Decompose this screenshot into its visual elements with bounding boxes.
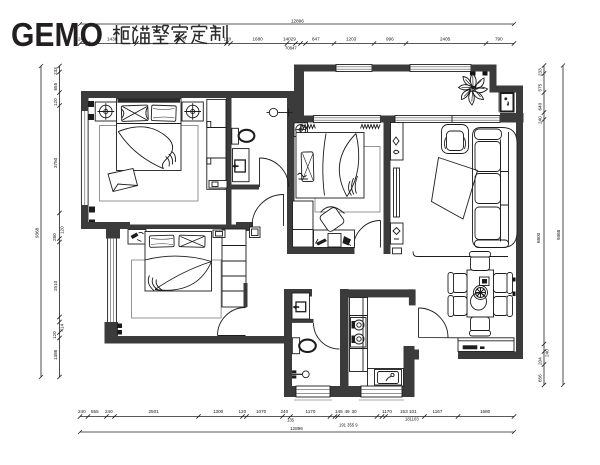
- svg-text:191 355 9: 191 355 9: [339, 423, 358, 428]
- svg-text:240: 240: [78, 409, 86, 414]
- svg-text:280: 280: [52, 233, 57, 241]
- svg-text:847: 847: [312, 37, 320, 42]
- svg-text:1170: 1170: [306, 409, 316, 414]
- svg-text:9368: 9368: [556, 229, 561, 240]
- svg-text:145: 145: [335, 409, 343, 414]
- svg-text:49: 49: [345, 409, 351, 414]
- svg-text:2405: 2405: [440, 37, 451, 42]
- svg-text:12896: 12896: [291, 19, 304, 24]
- svg-text:2501: 2501: [149, 409, 160, 414]
- svg-text:70847: 70847: [285, 46, 297, 51]
- svg-text:120: 120: [239, 409, 247, 414]
- svg-text:120: 120: [52, 331, 57, 339]
- svg-text:996: 996: [386, 37, 394, 42]
- svg-text:101: 101: [409, 409, 417, 414]
- svg-text:240: 240: [281, 409, 289, 414]
- svg-text:233: 233: [538, 68, 543, 76]
- svg-text:240: 240: [545, 349, 550, 357]
- svg-text:181103: 181103: [405, 417, 419, 422]
- svg-text:790: 790: [495, 37, 503, 42]
- svg-text:1070: 1070: [256, 409, 267, 414]
- svg-text:30: 30: [352, 409, 358, 414]
- svg-text:233: 233: [53, 67, 58, 75]
- svg-text:1167: 1167: [433, 409, 443, 414]
- svg-text:120: 120: [224, 37, 232, 42]
- svg-text:1170: 1170: [382, 409, 392, 414]
- svg-text:656: 656: [538, 374, 543, 382]
- svg-text:1386: 1386: [53, 349, 58, 360]
- svg-text:3750: 3750: [53, 157, 58, 168]
- svg-text:640: 640: [538, 102, 543, 110]
- svg-text:1203: 1203: [346, 37, 357, 42]
- svg-text:240: 240: [538, 116, 543, 124]
- svg-text:2670: 2670: [176, 37, 187, 42]
- svg-text:1436: 1436: [107, 37, 118, 42]
- svg-text:555: 555: [91, 409, 99, 414]
- svg-text:1300: 1300: [213, 409, 224, 414]
- svg-text:655: 655: [53, 82, 58, 90]
- svg-text:9368: 9368: [35, 227, 40, 238]
- svg-text:14029: 14029: [283, 37, 296, 42]
- svg-text:120: 120: [60, 226, 65, 234]
- svg-text:1680: 1680: [253, 37, 264, 42]
- svg-text:575: 575: [538, 83, 543, 91]
- svg-text:6800: 6800: [536, 232, 541, 243]
- svg-text:120: 120: [53, 98, 58, 106]
- svg-text:240: 240: [105, 409, 113, 414]
- svg-text:240: 240: [78, 37, 86, 42]
- svg-text:414: 414: [60, 323, 65, 331]
- svg-text:1680: 1680: [480, 409, 491, 414]
- svg-text:135: 135: [287, 418, 295, 423]
- svg-text:2510: 2510: [53, 280, 58, 291]
- svg-text:12896: 12896: [290, 426, 303, 431]
- svg-text:153: 153: [400, 409, 408, 414]
- svg-text:204: 204: [538, 357, 543, 365]
- svg-text:GEMO: GEMO: [11, 16, 103, 53]
